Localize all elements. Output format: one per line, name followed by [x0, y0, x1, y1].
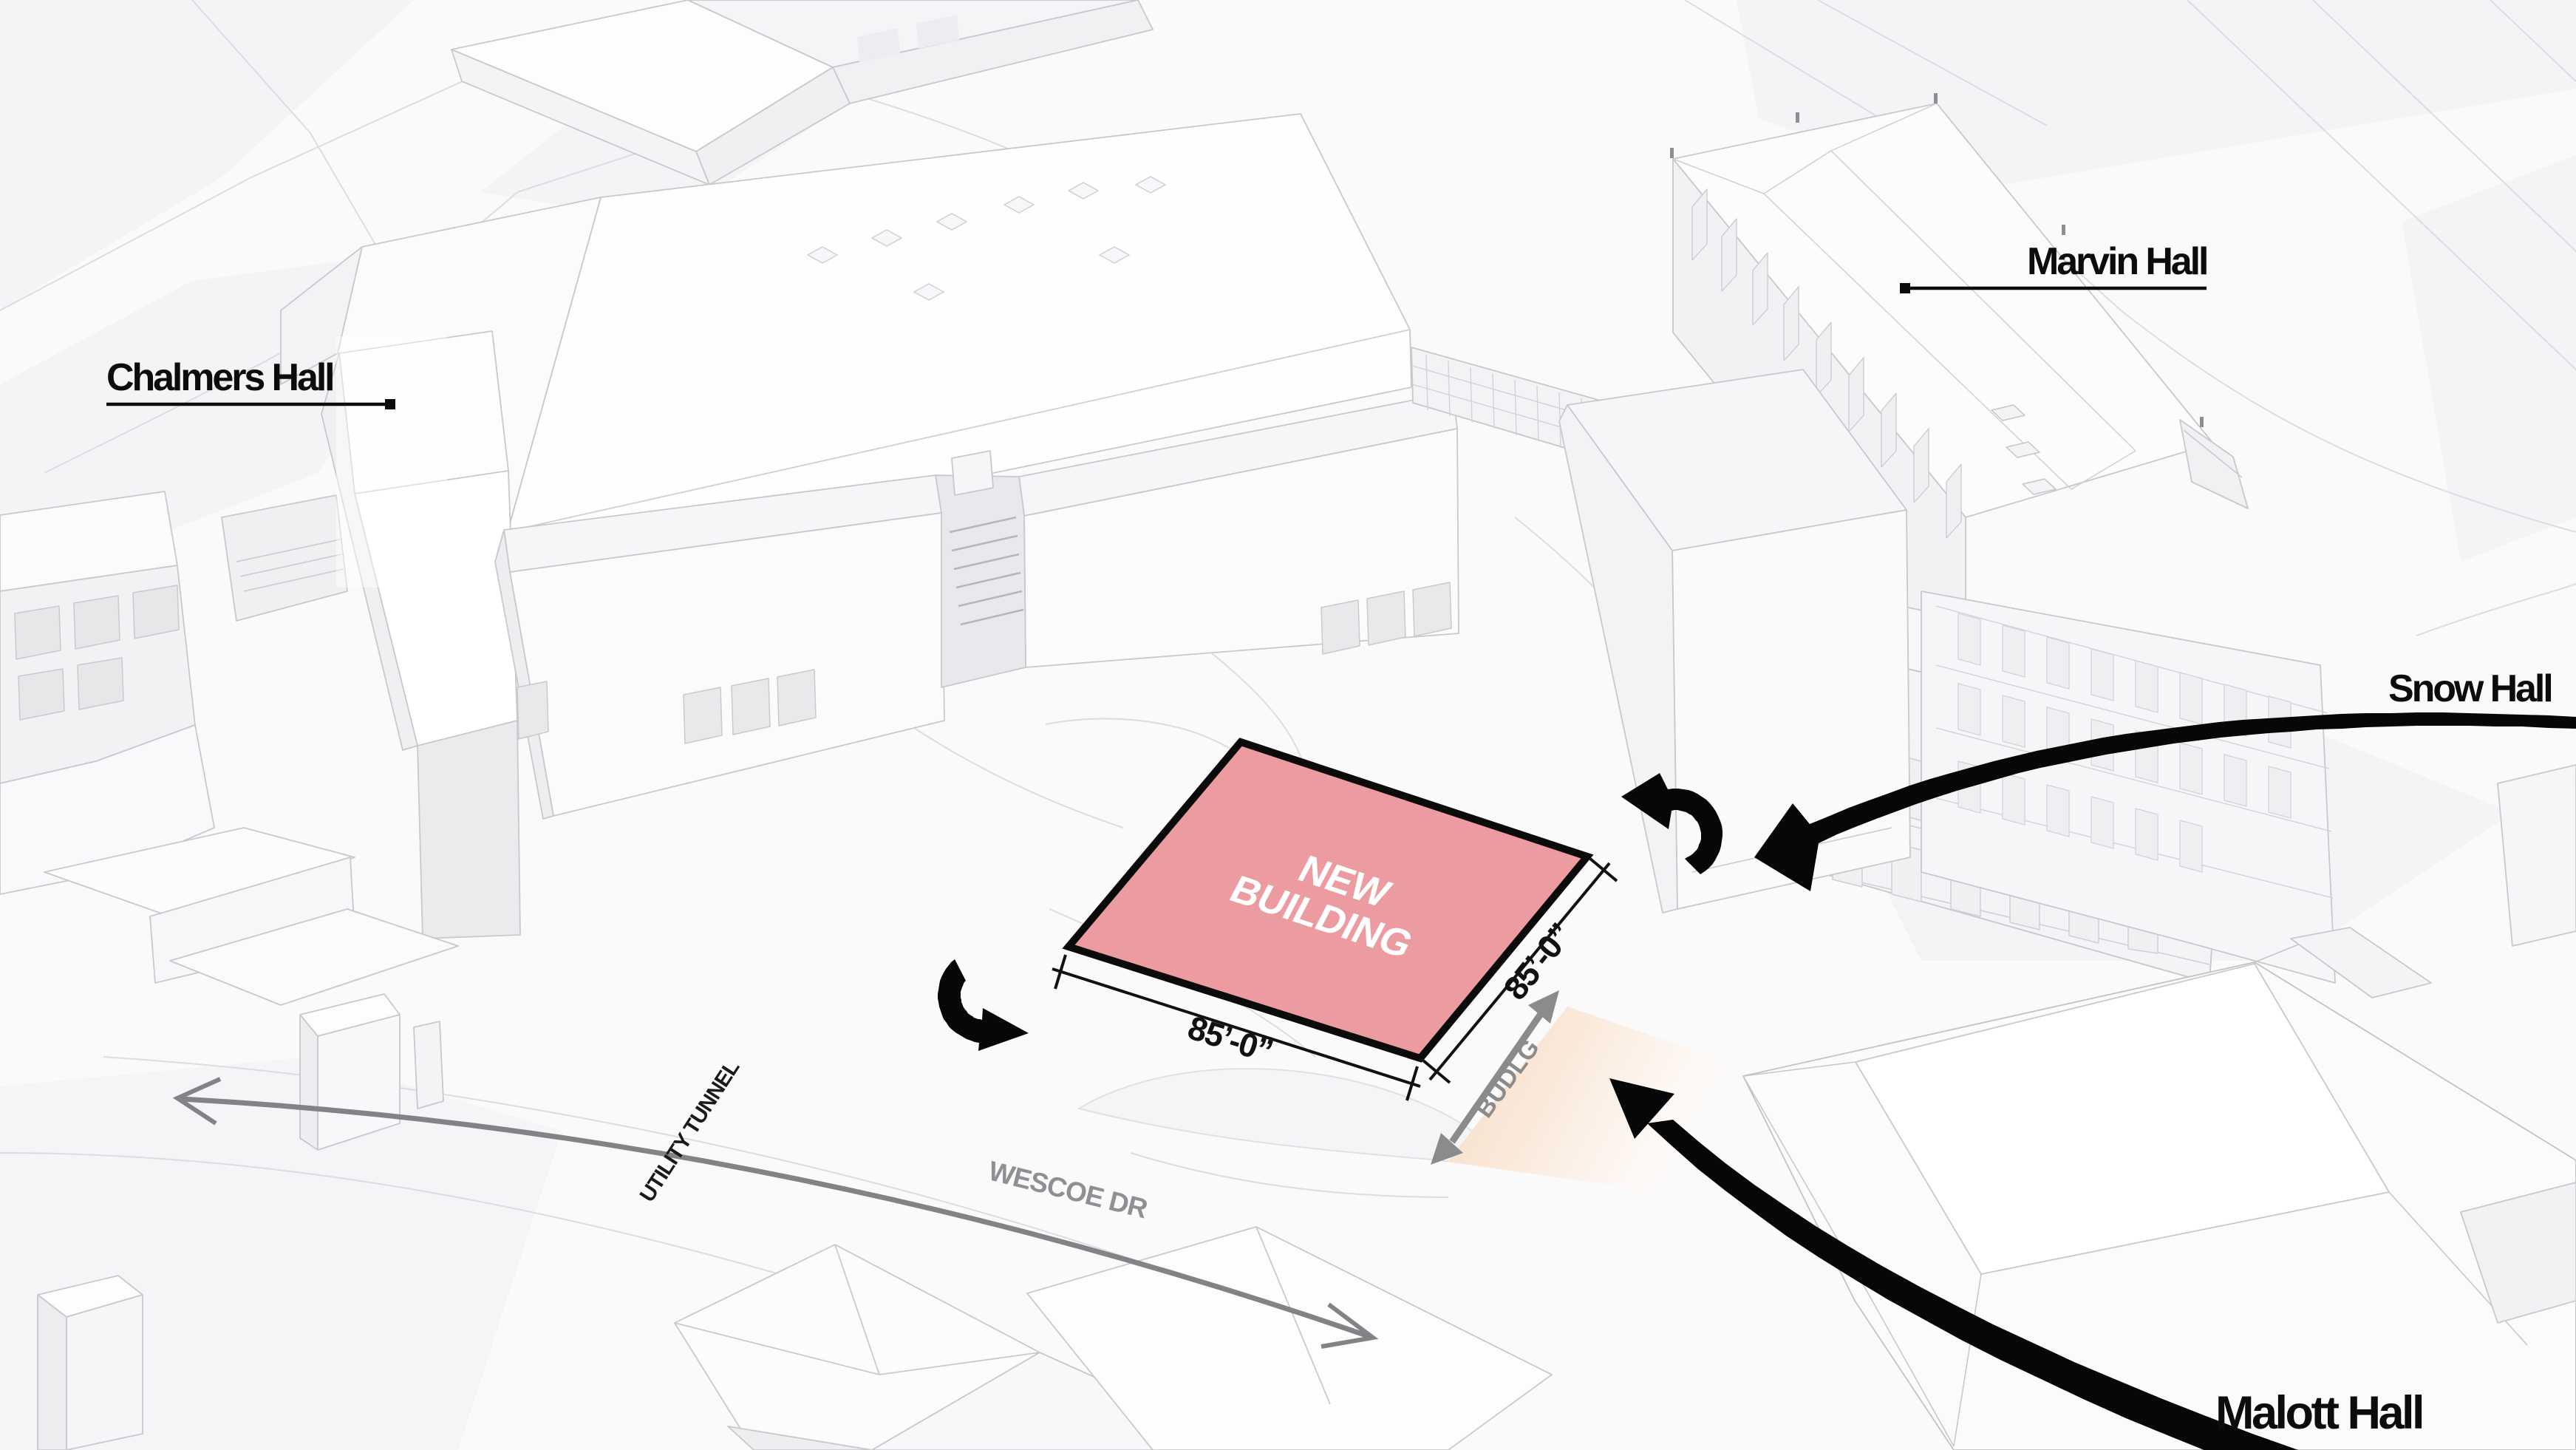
svg-text:Snow Hall: Snow Hall: [2388, 667, 2552, 710]
svg-text:Marvin Hall: Marvin Hall: [2027, 240, 2207, 283]
svg-text:Chalmers Hall: Chalmers Hall: [106, 356, 333, 399]
svg-text:Malott Hall: Malott Hall: [2215, 1387, 2422, 1439]
